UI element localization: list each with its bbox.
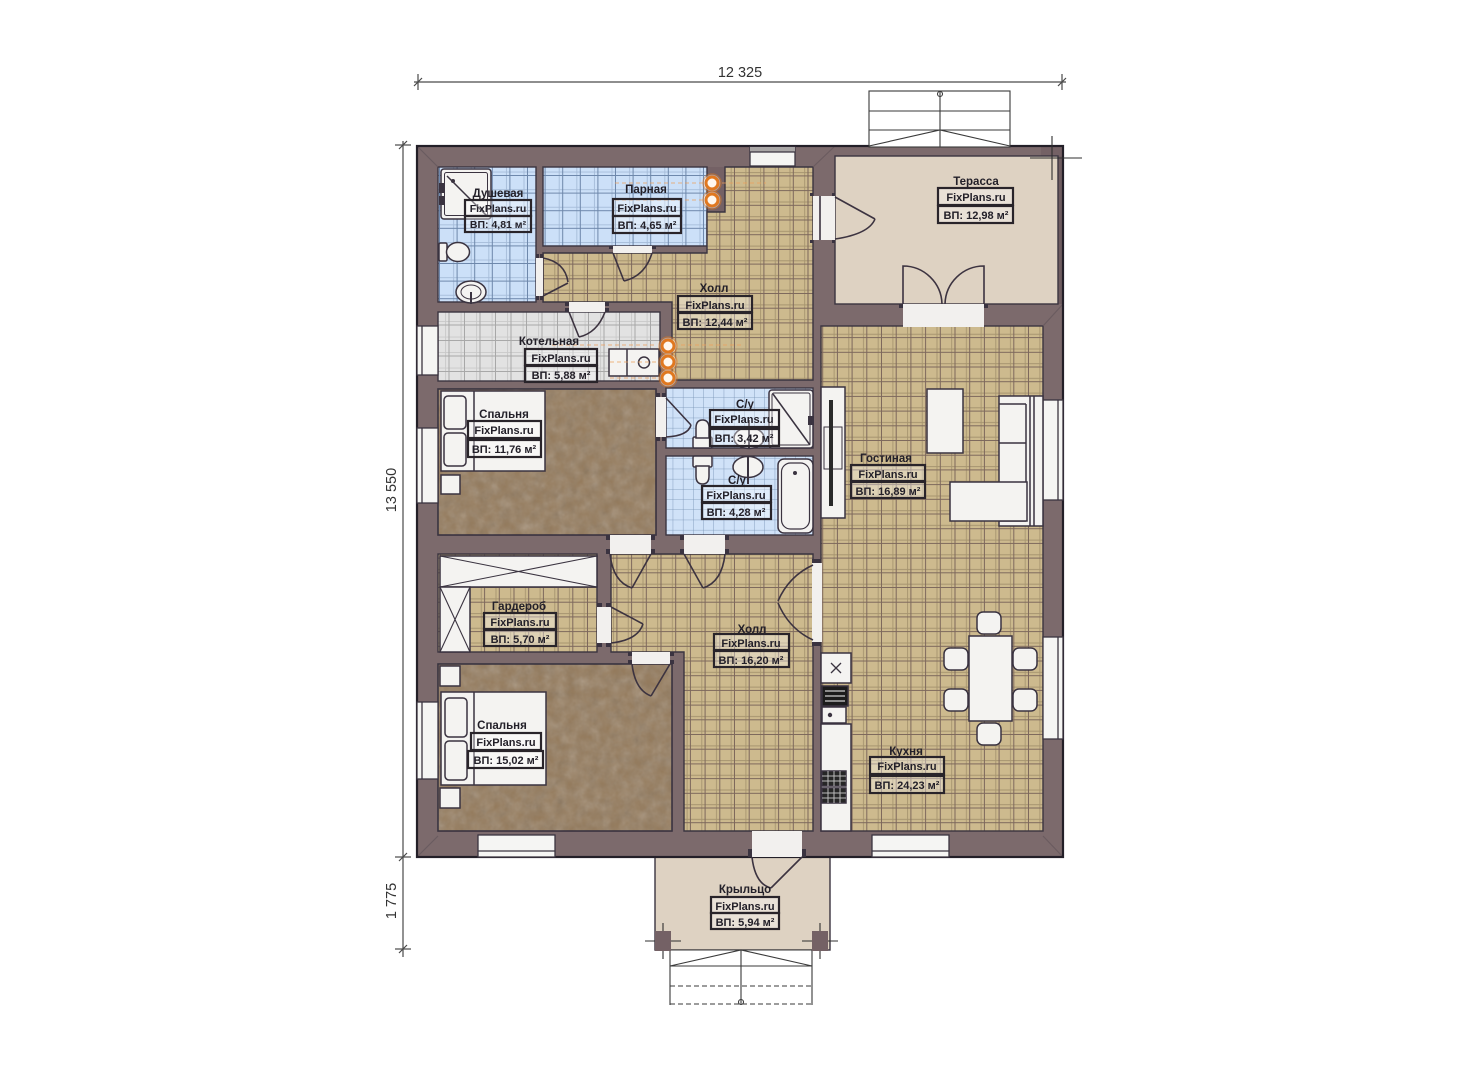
svg-text:12 325: 12 325 xyxy=(718,65,762,81)
svg-text:FixPlans.ru: FixPlans.ru xyxy=(714,414,773,426)
svg-text:FixPlans.ru: FixPlans.ru xyxy=(685,300,744,312)
svg-text:FixPlans.ru: FixPlans.ru xyxy=(721,638,780,650)
svg-text:Гардероб: Гардероб xyxy=(492,601,546,613)
svg-text:Котельная: Котельная xyxy=(519,336,579,348)
svg-text:Душевая: Душевая xyxy=(473,188,524,200)
svg-text:ВП: 4,81 м²: ВП: 4,81 м² xyxy=(470,219,527,231)
svg-text:FixPlans.ru: FixPlans.ru xyxy=(470,203,527,215)
svg-text:1 775: 1 775 xyxy=(384,883,400,919)
svg-text:ВП: 15,02 м²: ВП: 15,02 м² xyxy=(474,755,539,767)
svg-text:ВП: 5,88 м²: ВП: 5,88 м² xyxy=(532,370,591,382)
svg-text:FixPlans.ru: FixPlans.ru xyxy=(858,469,917,481)
svg-text:FixPlans.ru: FixPlans.ru xyxy=(877,761,936,773)
svg-text:13 550: 13 550 xyxy=(384,468,400,512)
svg-text:FixPlans.ru: FixPlans.ru xyxy=(476,737,535,749)
svg-text:FixPlans.ru: FixPlans.ru xyxy=(617,203,676,215)
svg-text:ВП: 16,20 м²: ВП: 16,20 м² xyxy=(719,655,784,667)
svg-text:Парная: Парная xyxy=(625,184,667,196)
svg-text:ВП: 4,65 м²: ВП: 4,65 м² xyxy=(618,220,677,232)
svg-text:ВП: 3,42 м²: ВП: 3,42 м² xyxy=(715,433,774,445)
svg-text:ВП: 5,70 м²: ВП: 5,70 м² xyxy=(491,634,550,646)
svg-text:ВП: 16,89 м²: ВП: 16,89 м² xyxy=(856,486,921,498)
svg-text:ВП: 12,44 м²: ВП: 12,44 м² xyxy=(683,317,748,329)
svg-text:Терасса: Терасса xyxy=(953,176,999,188)
svg-text:ВП: 5,94 м²: ВП: 5,94 м² xyxy=(716,917,775,929)
svg-text:FixPlans.ru: FixPlans.ru xyxy=(946,192,1005,204)
svg-text:FixPlans.ru: FixPlans.ru xyxy=(490,617,549,629)
svg-text:Гостиная: Гостиная xyxy=(860,453,912,465)
svg-text:ВП: 24,23 м²: ВП: 24,23 м² xyxy=(875,780,940,792)
svg-text:FixPlans.ru: FixPlans.ru xyxy=(715,901,774,913)
svg-text:ВП: 12,98 м²: ВП: 12,98 м² xyxy=(944,210,1009,222)
svg-text:ВП: 11,76 м²: ВП: 11,76 м² xyxy=(472,444,537,456)
svg-text:FixPlans.ru: FixPlans.ru xyxy=(531,353,590,365)
svg-text:Спальня: Спальня xyxy=(479,409,529,421)
svg-text:FixPlans.ru: FixPlans.ru xyxy=(706,490,765,502)
svg-text:Крыльцо: Крыльцо xyxy=(719,884,771,896)
svg-text:Холл: Холл xyxy=(700,283,729,295)
svg-text:FixPlans.ru: FixPlans.ru xyxy=(474,425,533,437)
svg-text:Спальня: Спальня xyxy=(477,720,527,732)
svg-text:ВП: 4,28 м²: ВП: 4,28 м² xyxy=(707,507,766,519)
